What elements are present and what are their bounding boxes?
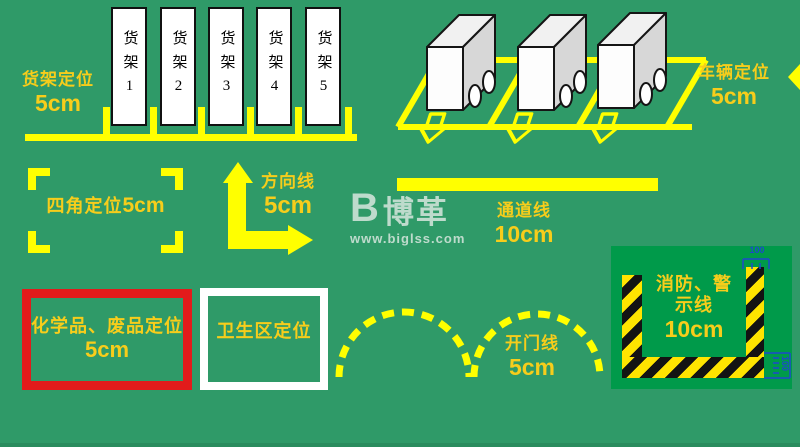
- edge-wedge: [788, 64, 800, 90]
- dimension-top-value: 100: [742, 245, 772, 255]
- truck-1: [427, 15, 495, 110]
- hygiene-zone-label: 卫生区定位: [208, 321, 320, 342]
- vehicle-slot-lines: [398, 60, 706, 127]
- slot-arrow-icons: [414, 114, 623, 142]
- door-line-label: 开门线 5cm: [494, 334, 570, 381]
- hazard-stripe-bottom-bar: [622, 357, 764, 378]
- direction-line-label: 方向线 5cm: [252, 172, 324, 220]
- shelf-2-label: 货架2: [171, 30, 186, 103]
- shelf-positioning-label: 货架定位 5cm: [10, 70, 106, 117]
- truck-2: [518, 15, 586, 110]
- shelf-1-label: 货架1: [122, 30, 137, 103]
- watermark-logo-text: 博革: [383, 197, 449, 228]
- shelf-3-label: 货架3: [219, 30, 234, 103]
- shelf-4: 货架4: [256, 7, 292, 126]
- corner-positioning-label: 四角定位5cm: [38, 194, 173, 219]
- dimension-side-value: 100: [780, 356, 790, 371]
- watermark-url: www.biglss.com: [350, 232, 465, 245]
- watermark: B 博革 www.biglss.com: [350, 188, 465, 245]
- shelf-1: 货架1: [111, 7, 147, 126]
- shelf-4-label: 货架4: [267, 30, 282, 103]
- vehicle-positioning-label: 车辆定位 5cm: [688, 63, 780, 110]
- truck-3: [598, 13, 666, 108]
- shelf-2: 货架2: [160, 7, 196, 126]
- bottom-edge-shade: [0, 443, 800, 447]
- watermark-logo-icon: B: [350, 188, 377, 228]
- shelf-3: 货架3: [208, 7, 244, 126]
- shelf-5: 货架5: [305, 7, 341, 126]
- fire-warning-label: 消防、警 示线 10cm: [646, 274, 742, 344]
- floor-marking-diagram: 货架1 货架2 货架3 货架4 货架5 货架定位 5cm 车辆定位 5cm 四角…: [0, 0, 800, 447]
- shelf-5-label: 货架5: [316, 30, 331, 103]
- chemical-zone-label: 化学品、废品定位 5cm: [22, 316, 192, 363]
- channel-line-label: 通道线 10cm: [485, 201, 563, 248]
- truck-graphics: [427, 13, 666, 110]
